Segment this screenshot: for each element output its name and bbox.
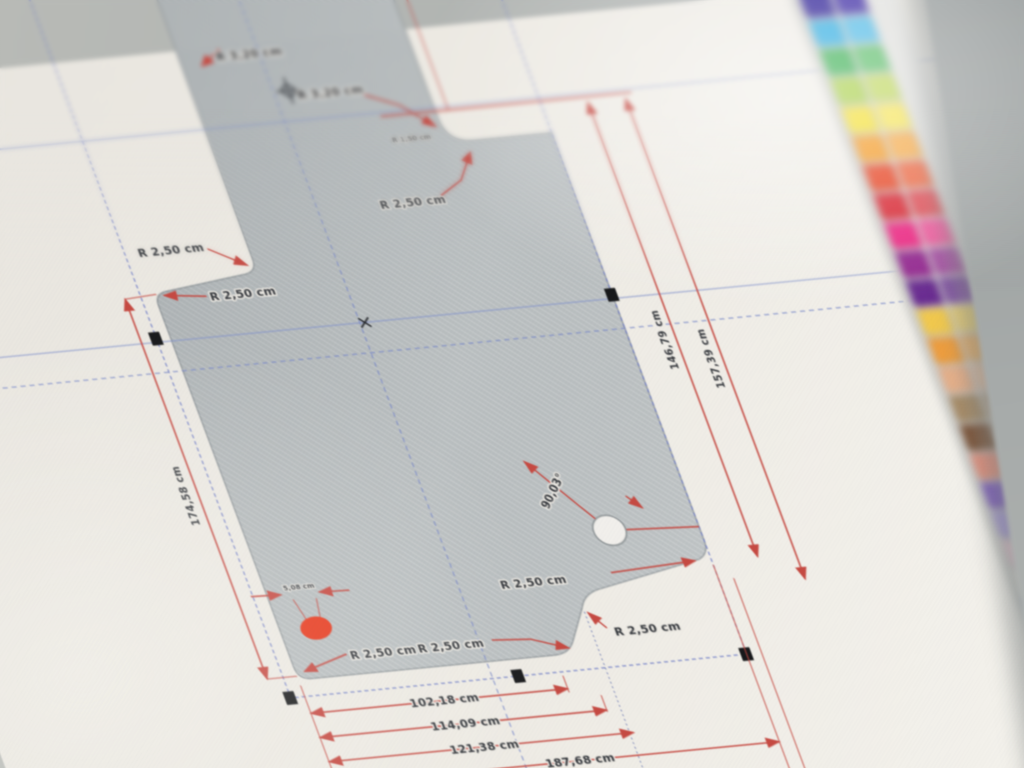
palette-swatch[interactable] <box>852 44 892 73</box>
label-width-3: 121,38 cm <box>448 737 521 757</box>
tick <box>563 676 569 693</box>
palette-swatch[interactable] <box>873 102 913 131</box>
extension-line-bottom-left <box>301 685 346 768</box>
label-radius-step-upper: R 2,50 cm <box>136 241 206 260</box>
label-width-4: 187,68 cm <box>544 751 617 768</box>
tick <box>601 695 607 712</box>
palette-swatch[interactable] <box>884 131 924 160</box>
palette-swatch[interactable] <box>906 188 946 217</box>
extension-line-right-1 <box>713 565 857 768</box>
label-width-1: 102,18 cm <box>408 691 481 711</box>
label-radius-bottom-right: R 2,50 cm <box>612 619 682 638</box>
leader-radius-step-upper <box>207 246 247 269</box>
selection-handle-bottom-left[interactable] <box>282 691 298 705</box>
palette-swatch[interactable] <box>862 73 902 102</box>
leader-radius-bottom-right <box>588 611 607 629</box>
palette-swatch[interactable] <box>797 0 837 18</box>
monitor-screen: R 3,20 cm R 3,20 cm R 1,50 cm R 2,50 cm … <box>0 0 1024 768</box>
extension-line-right-2 <box>734 578 873 768</box>
photo-frame: R 3,20 cm R 3,20 cm R 1,50 cm R 2,50 cm … <box>0 0 1024 768</box>
label-width-2: 114,09 cm <box>429 714 502 734</box>
palette-swatch[interactable] <box>895 160 935 189</box>
tick <box>124 294 157 299</box>
tick <box>267 676 297 679</box>
palette-swatch[interactable] <box>916 217 956 246</box>
palette-swatch[interactable] <box>927 246 967 275</box>
palette-swatch[interactable] <box>841 15 881 44</box>
selection-handle-bottom-center[interactable] <box>510 669 526 683</box>
